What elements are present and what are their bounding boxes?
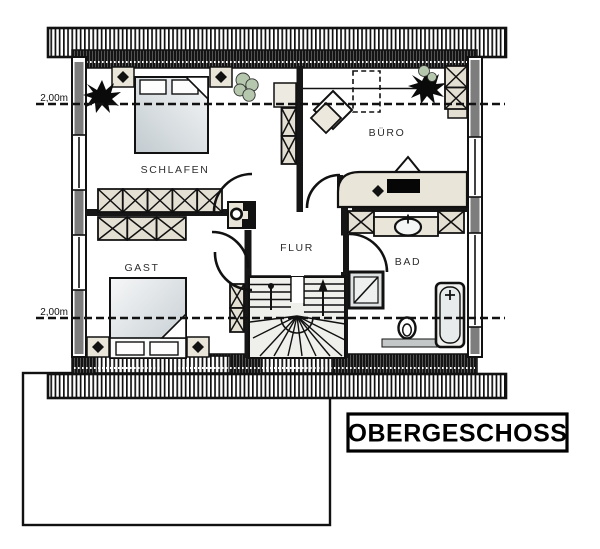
double-bed-icon	[135, 77, 208, 153]
floorplan-drawing: 2,00m 2,00m SCHLAFEN BÜRO GAST FLUR BAD …	[0, 0, 600, 549]
bath-ledge	[382, 339, 438, 347]
floor-title-box: OBERGESCHOSS	[348, 414, 568, 451]
chimney-icon	[228, 202, 255, 228]
cabinet-icon	[445, 66, 467, 118]
left-wall	[72, 57, 86, 357]
cabinet-icon	[282, 108, 297, 136]
room-label-buero: BÜRO	[369, 127, 406, 139]
floor-title: OBERGESCHOSS	[348, 420, 568, 448]
room-label-bad: BAD	[395, 256, 421, 268]
bottom-roof-band	[48, 354, 506, 398]
stair-walkline-start	[268, 283, 274, 289]
bathtub-icon	[436, 283, 464, 347]
floorplan-page: 2,00m 2,00m SCHLAFEN BÜRO GAST FLUR BAD …	[0, 0, 600, 549]
nightstand-icon	[187, 337, 209, 357]
cabinet-icon	[282, 136, 297, 164]
shower-icon	[349, 272, 383, 308]
room-label-flur: FLUR	[280, 242, 314, 254]
wardrobe-icon	[98, 189, 222, 212]
room-label-gast: GAST	[125, 262, 160, 274]
nightstand-icon	[87, 337, 109, 357]
dimension-label: 2,00m	[40, 93, 68, 104]
cabinet-icon	[230, 308, 244, 332]
room-label-schlafen: SCHLAFEN	[141, 164, 210, 176]
top-roof-band	[48, 28, 506, 68]
toilet-icon	[399, 318, 416, 339]
right-wall	[468, 57, 482, 357]
monitor-icon	[387, 179, 420, 193]
nightstand-icon	[112, 67, 134, 87]
wardrobe-icon	[98, 217, 186, 240]
nightstand-icon	[210, 67, 232, 87]
dimension-label: 2,00m	[40, 307, 68, 318]
door-leaf	[343, 234, 349, 272]
